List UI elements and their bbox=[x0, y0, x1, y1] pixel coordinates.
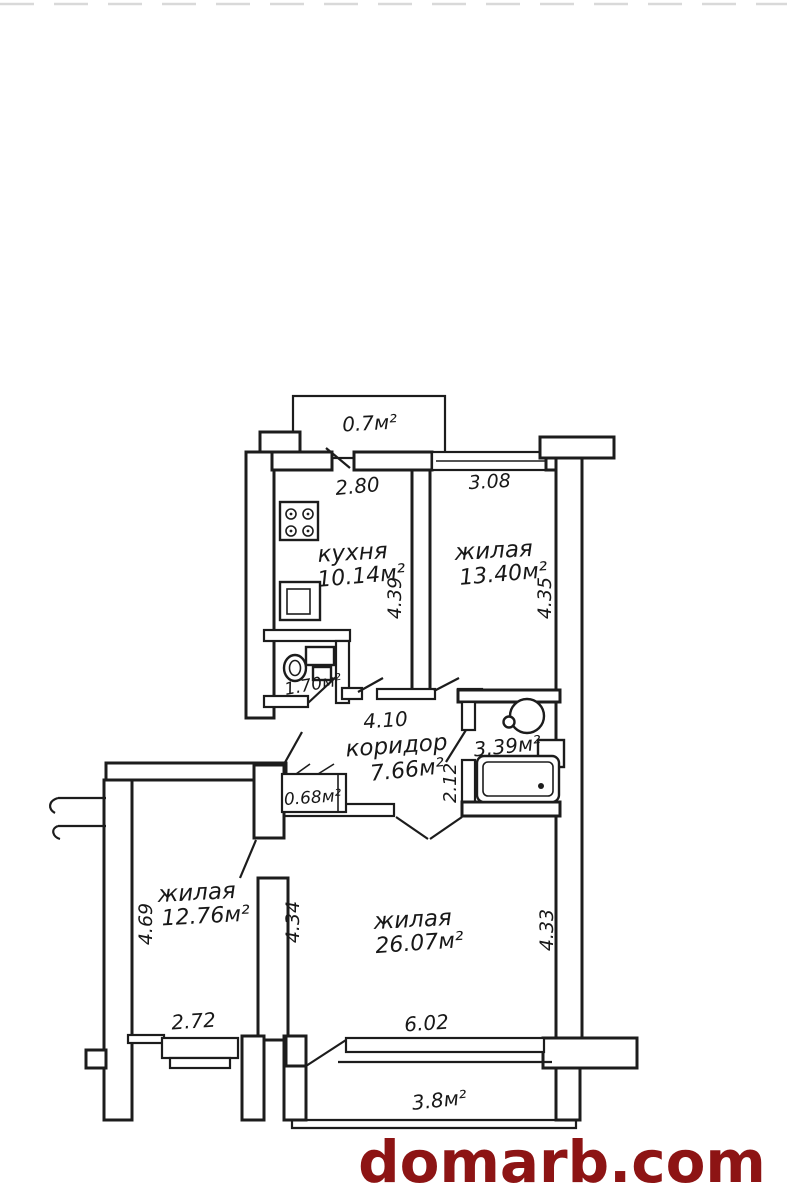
room3-area: 26.07м² bbox=[375, 928, 465, 959]
floorplan-image: 0.7м² 2.80 3.08 кухня 10.14м² жилая 13.4… bbox=[0, 0, 787, 1200]
wall-segment bbox=[543, 1038, 637, 1068]
dim-kitchen-width: 2.80 bbox=[334, 472, 380, 500]
wall-segment bbox=[540, 437, 614, 458]
door-swing bbox=[430, 817, 462, 839]
wall-break-squiggle bbox=[53, 826, 60, 839]
closet-area: 0.68м² bbox=[283, 786, 342, 810]
wall-segment bbox=[272, 452, 332, 470]
door-swing bbox=[446, 730, 466, 762]
closet-hatch-mark bbox=[318, 764, 334, 774]
window bbox=[346, 1038, 544, 1052]
closet-hatch-mark bbox=[296, 764, 310, 774]
wall-segment bbox=[462, 760, 475, 806]
door-swing bbox=[240, 840, 256, 878]
wall-segment bbox=[246, 452, 274, 718]
wall-segment bbox=[342, 688, 362, 699]
dim-room3-height-left: 4.34 bbox=[282, 901, 304, 943]
wall-segment bbox=[128, 1035, 164, 1043]
wall-segment bbox=[260, 432, 300, 452]
dim-room2-width: 2.72 bbox=[170, 1007, 216, 1034]
dim-corridor-width: 4.10 bbox=[362, 706, 408, 733]
wall-segment bbox=[354, 452, 432, 470]
window-sill bbox=[170, 1058, 230, 1068]
door-swing bbox=[434, 678, 459, 691]
wall-segment bbox=[412, 470, 430, 692]
dim-room1-height: 4.35 bbox=[534, 577, 556, 619]
wall-segment bbox=[264, 630, 350, 641]
dim-room3-width: 6.02 bbox=[403, 1009, 449, 1036]
dim-room2-height: 4.69 bbox=[135, 903, 157, 945]
dim-room1-width: 3.08 bbox=[468, 470, 511, 494]
washbasin-icon bbox=[504, 699, 545, 733]
door-swing bbox=[283, 732, 302, 766]
door-swing bbox=[396, 817, 428, 839]
window bbox=[162, 1038, 238, 1058]
wall-segment bbox=[242, 1036, 264, 1120]
wall-segment bbox=[254, 765, 284, 838]
wall-segment bbox=[286, 1036, 306, 1066]
dim-kitchen-height: 4.39 bbox=[384, 577, 406, 619]
wall-break-squiggle bbox=[50, 798, 58, 813]
bathtub-icon bbox=[477, 756, 559, 802]
balcony-top-area: 0.7м² bbox=[342, 410, 398, 437]
sink-icon bbox=[280, 582, 320, 620]
wall-segment bbox=[377, 689, 435, 699]
watermark-text: domarb.com bbox=[358, 1128, 766, 1196]
dim-corridor-height: 2.12 bbox=[440, 763, 461, 803]
wall-segment bbox=[458, 690, 560, 702]
balcony-bottom-area: 3.8м² bbox=[411, 1085, 468, 1115]
wall-segment bbox=[462, 802, 560, 816]
room2-area: 12.76м² bbox=[161, 902, 251, 932]
wall-segment bbox=[86, 1050, 106, 1068]
wall-segment bbox=[556, 1068, 580, 1120]
stove-icon bbox=[280, 502, 318, 540]
dim-room3-height-right: 4.33 bbox=[536, 909, 558, 951]
wall-segment bbox=[104, 780, 132, 1120]
wall-segment bbox=[462, 702, 475, 730]
